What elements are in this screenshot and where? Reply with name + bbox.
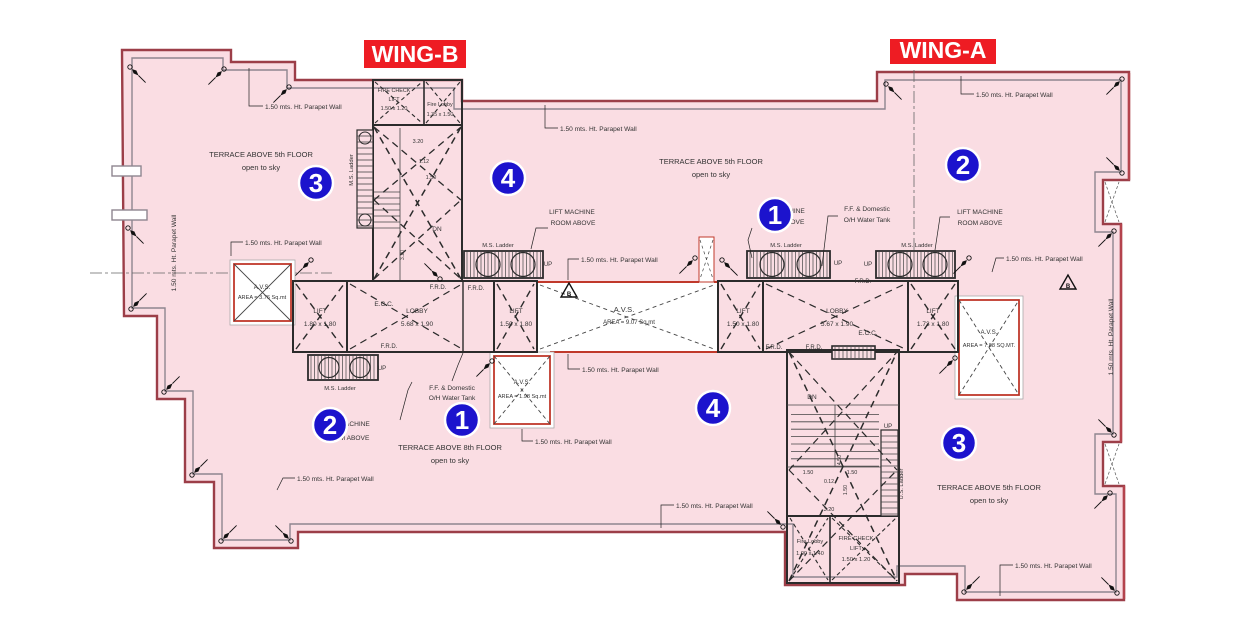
svg-text:B: B — [1066, 284, 1071, 290]
svg-text:ROOM ABOVE: ROOM ABOVE — [958, 220, 1003, 227]
svg-text:1.50: 1.50 — [426, 175, 437, 181]
svg-text:DN: DN — [432, 226, 442, 233]
svg-text:1: 1 — [768, 200, 782, 230]
svg-text:LIFT: LIFT — [313, 308, 326, 315]
svg-text:open to sky: open to sky — [970, 496, 1009, 505]
svg-text:3: 3 — [952, 428, 966, 458]
svg-text:1.50 x 1.80: 1.50 x 1.80 — [727, 321, 760, 328]
svg-text:open to sky: open to sky — [692, 170, 731, 179]
svg-text:2: 2 — [323, 410, 337, 440]
svg-text:1.50 mts. Ht. Parapet Wall: 1.50 mts. Ht. Parapet Wall — [265, 104, 342, 111]
svg-text:LIFT: LIFT — [850, 546, 862, 552]
svg-text:F.F. & Domestic: F.F. & Domestic — [429, 385, 476, 392]
svg-text:M.S. Ladder: M.S. Ladder — [770, 243, 802, 249]
svg-text:A.V.S.: A.V.S. — [614, 305, 635, 314]
svg-text:LIFT MACHINE: LIFT MACHINE — [549, 209, 595, 216]
svg-text:UP: UP — [884, 424, 892, 430]
svg-text:UP: UP — [864, 262, 872, 268]
svg-text:1.50 mts. Ht. Parapet Wall: 1.50 mts. Ht. Parapet Wall — [1108, 298, 1115, 375]
svg-text:F.F. & Domestic: F.F. & Domestic — [844, 206, 891, 213]
svg-text:open to sky: open to sky — [242, 163, 281, 172]
svg-text:FIRE CHECK: FIRE CHECK — [838, 536, 873, 542]
svg-text:1.50 mts. Ht. Parapet Wall: 1.50 mts. Ht. Parapet Wall — [676, 503, 753, 510]
svg-text:FIRE CHECK: FIRE CHECK — [378, 88, 411, 94]
svg-text:0.12: 0.12 — [824, 479, 834, 485]
svg-text:WING-B: WING-B — [372, 41, 459, 67]
svg-text:AREA = 3.76 Sq.mt: AREA = 3.76 Sq.mt — [238, 295, 287, 301]
svg-text:1.80 x 1.80: 1.80 x 1.80 — [304, 321, 337, 328]
svg-text:3.20: 3.20 — [413, 139, 424, 145]
svg-text:LIFT MACHINE: LIFT MACHINE — [957, 209, 1003, 216]
svg-text:UP: UP — [834, 261, 842, 267]
svg-text:1.50: 1.50 — [843, 485, 849, 495]
svg-text:A.V.S.: A.V.S. — [514, 380, 531, 386]
svg-text:1.73 x 1.80: 1.73 x 1.80 — [917, 321, 950, 328]
svg-text:E.C.C.: E.C.C. — [858, 330, 877, 337]
svg-text:F.R.D.: F.R.D. — [381, 344, 398, 350]
svg-text:1: 1 — [455, 405, 469, 435]
svg-text:M.S. Ladder: M.S. Ladder — [901, 243, 933, 249]
svg-text:F.R.D.: F.R.D. — [468, 286, 485, 292]
svg-text:1.50: 1.50 — [847, 470, 858, 476]
svg-text:1.50 x 1.80: 1.50 x 1.80 — [500, 321, 533, 328]
svg-text:1.50: 1.50 — [803, 470, 814, 476]
svg-text:4.50: 4.50 — [837, 455, 843, 465]
svg-text:DN: DN — [807, 394, 817, 401]
svg-text:Fire Lobby: Fire Lobby — [797, 539, 824, 545]
svg-text:3.20: 3.20 — [824, 507, 835, 513]
svg-text:A.V.S.: A.V.S. — [254, 285, 271, 291]
svg-text:ROOM ABOVE: ROOM ABOVE — [551, 220, 596, 227]
svg-text:O/H Water Tank: O/H Water Tank — [844, 217, 891, 224]
svg-text:4: 4 — [706, 393, 721, 423]
svg-text:E.C.C.: E.C.C. — [374, 301, 393, 308]
svg-text:U.S. Ladder: U.S. Ladder — [899, 468, 905, 499]
svg-text:F.R.D.: F.R.D. — [855, 279, 872, 285]
svg-text:LIFT: LIFT — [736, 308, 749, 315]
svg-text:F.R.D.: F.R.D. — [766, 345, 783, 351]
svg-text:1.50 mts. Ht. Parapet Wall: 1.50 mts. Ht. Parapet Wall — [535, 439, 612, 446]
svg-text:1.50 mts. Ht. Parapet Wall: 1.50 mts. Ht. Parapet Wall — [1015, 563, 1092, 570]
svg-text:AREA = 1.98 Sq.mt: AREA = 1.98 Sq.mt — [498, 394, 547, 400]
svg-text:open to sky: open to sky — [431, 456, 470, 465]
svg-text:LIFT: LIFT — [926, 308, 939, 315]
svg-text:1.50 x 1.20: 1.50 x 1.20 — [381, 106, 408, 112]
svg-text:F.R.D.: F.R.D. — [430, 285, 447, 291]
svg-text:M.S. Ladder: M.S. Ladder — [482, 243, 514, 249]
svg-text:5.67 x 1.90: 5.67 x 1.90 — [821, 321, 854, 328]
svg-text:AREA = 7.08 SQ.MT.: AREA = 7.08 SQ.MT. — [963, 343, 1016, 349]
svg-text:5.68 x 1.90: 5.68 x 1.90 — [401, 321, 434, 328]
svg-text:1.50 mts. Ht. Parapet Wall: 1.50 mts. Ht. Parapet Wall — [297, 476, 374, 483]
svg-text:TERRACE ABOVE 5th FLOOR: TERRACE ABOVE 5th FLOOR — [937, 483, 1041, 492]
svg-text:F.R.D.: F.R.D. — [806, 345, 823, 351]
svg-text:UP: UP — [378, 366, 386, 372]
svg-text:LOBBY: LOBBY — [406, 308, 428, 315]
svg-text:AREA = 9.07 Sq.mt: AREA = 9.07 Sq.mt — [603, 320, 655, 326]
svg-text:2: 2 — [956, 150, 970, 180]
svg-text:M.S. Ladder: M.S. Ladder — [349, 154, 355, 186]
svg-text:1.35 x 1.50: 1.35 x 1.50 — [427, 112, 454, 118]
svg-text:1.50 mts. Ht. Parapet Wall: 1.50 mts. Ht. Parapet Wall — [976, 92, 1053, 99]
svg-text:TERRACE ABOVE 5th FLOOR: TERRACE ABOVE 5th FLOOR — [209, 150, 313, 159]
svg-text:1.50 mts. Ht. Parapet Wall: 1.50 mts. Ht. Parapet Wall — [581, 257, 658, 264]
svg-text:3: 3 — [309, 168, 323, 198]
svg-text:4: 4 — [501, 163, 516, 193]
svg-text:M.S. Ladder: M.S. Ladder — [324, 386, 356, 392]
svg-text:UP: UP — [544, 262, 552, 268]
svg-text:1.50 mts. Ht. Parapet Wall: 1.50 mts. Ht. Parapet Wall — [582, 367, 659, 374]
svg-text:1.50 mts. Ht. Parapet Wall: 1.50 mts. Ht. Parapet Wall — [245, 240, 322, 247]
svg-text:1.50 mts. Ht. Parapet Wall: 1.50 mts. Ht. Parapet Wall — [560, 126, 637, 133]
svg-text:TERRACE ABOVE 8th FLOOR: TERRACE ABOVE 8th FLOOR — [398, 443, 502, 452]
svg-text:LIFT: LIFT — [388, 97, 400, 103]
svg-text:1.50 mts. Ht. Parapet Wall: 1.50 mts. Ht. Parapet Wall — [171, 214, 178, 291]
svg-text:Fire Lobby: Fire Lobby — [427, 102, 453, 108]
svg-text:1.12: 1.12 — [419, 159, 429, 165]
svg-text:LOBBY: LOBBY — [826, 308, 848, 315]
svg-text:1.00 x 1.40: 1.00 x 1.40 — [796, 551, 824, 557]
svg-text:1.50 mts. Ht. Parapet Wall: 1.50 mts. Ht. Parapet Wall — [1006, 256, 1083, 263]
svg-text:O/H Water Tank: O/H Water Tank — [429, 395, 476, 402]
svg-text:3.20: 3.20 — [400, 250, 406, 260]
svg-text:LIFT: LIFT — [509, 308, 522, 315]
svg-text:TERRACE ABOVE 5th FLOOR: TERRACE ABOVE 5th FLOOR — [659, 157, 763, 166]
svg-text:B: B — [567, 292, 572, 298]
svg-text:A.V.S.: A.V.S. — [981, 329, 998, 336]
svg-text:1.50 x 1.20: 1.50 x 1.20 — [842, 557, 871, 563]
svg-text:WING-A: WING-A — [900, 37, 987, 63]
